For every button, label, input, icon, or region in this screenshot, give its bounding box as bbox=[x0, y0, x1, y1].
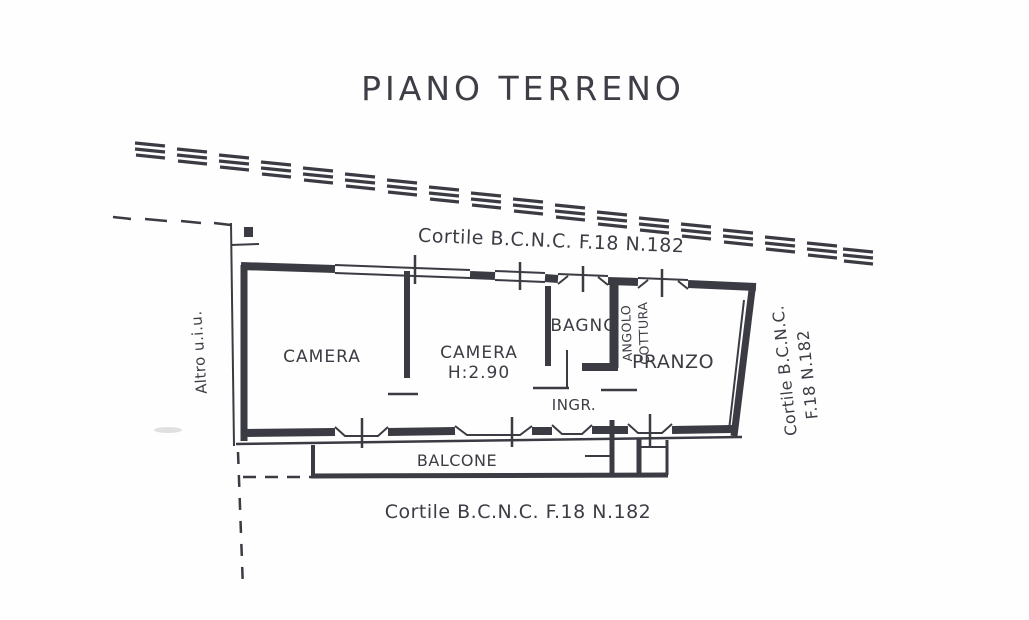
room-label-balcone: BALCONE bbox=[417, 451, 497, 470]
room-label-camera-2: CAMERA bbox=[440, 343, 518, 363]
floor-plan-drawing: PIANO TERRENO bbox=[0, 0, 1029, 620]
windows-top-wall bbox=[335, 255, 688, 297]
room-label-pranzo: PRANZO bbox=[632, 351, 714, 373]
room-label-ingresso: INGR. bbox=[552, 396, 596, 414]
other-unit-label: Altro u.i.u. bbox=[187, 310, 211, 395]
room-label-bagno: BAGNO bbox=[550, 316, 617, 336]
room-label-camera-1: CAMERA bbox=[283, 347, 361, 367]
courtyard-right-label-line1: Cortile B.C.N.C. bbox=[768, 304, 801, 437]
room-label-camera-2-height: H:2.90 bbox=[448, 363, 510, 383]
floor-plan-page: PIANO TERRENO bbox=[0, 0, 1029, 620]
page-title: PIANO TERRENO bbox=[361, 69, 685, 108]
courtyard-bottom-label: Cortile B.C.N.C. F.18 N.182 bbox=[385, 501, 652, 523]
scan-smudge bbox=[154, 427, 182, 433]
property-dashed-line-top bbox=[113, 217, 231, 225]
dashed-boundary-bottom-left bbox=[238, 452, 311, 589]
